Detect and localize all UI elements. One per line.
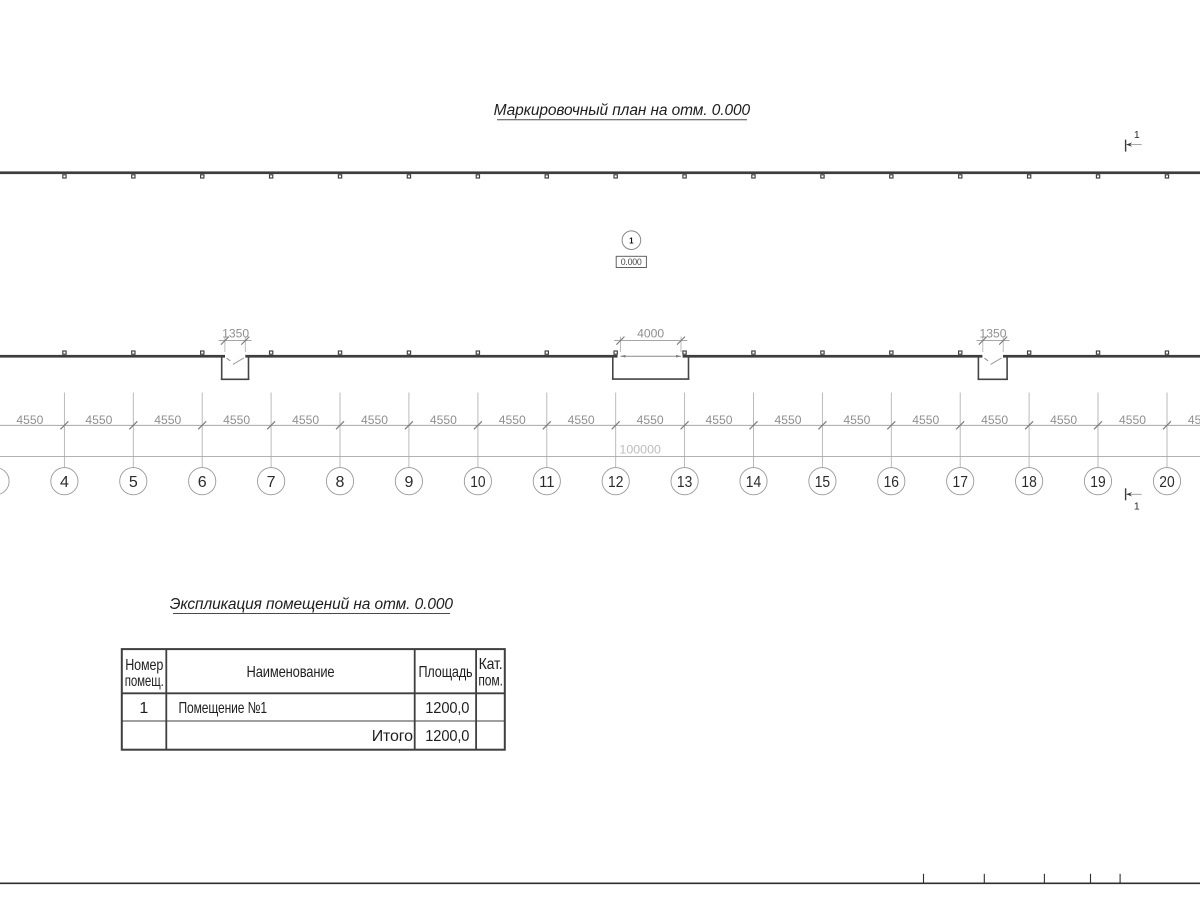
svg-text:4550: 4550 bbox=[775, 413, 802, 427]
svg-text:4550: 4550 bbox=[292, 413, 319, 427]
svg-text:4550: 4550 bbox=[430, 413, 457, 427]
svg-text:20: 20 bbox=[1159, 474, 1174, 491]
svg-text:1: 1 bbox=[139, 700, 148, 717]
svg-text:1: 1 bbox=[629, 236, 634, 245]
svg-text:Помещение №1: Помещение №1 bbox=[179, 700, 268, 717]
svg-text:Экспликация помещений на отм.: Экспликация помещений на отм. 0.000 bbox=[170, 596, 454, 613]
svg-text:4550: 4550 bbox=[85, 413, 112, 427]
svg-text:1350: 1350 bbox=[980, 326, 1007, 340]
svg-text:12: 12 bbox=[608, 474, 623, 491]
svg-text:4550: 4550 bbox=[1119, 413, 1146, 427]
svg-text:4: 4 bbox=[60, 474, 69, 491]
svg-text:Кат.: Кат. bbox=[479, 656, 503, 673]
svg-text:Маркировочный план на отм. 0.0: Маркировочный план на отм. 0.000 bbox=[494, 102, 751, 119]
svg-text:8: 8 bbox=[336, 474, 345, 491]
svg-text:1200,0: 1200,0 bbox=[425, 700, 469, 717]
svg-text:17: 17 bbox=[953, 474, 968, 491]
svg-text:4550: 4550 bbox=[568, 413, 595, 427]
svg-text:пом.: пом. bbox=[478, 673, 503, 690]
svg-text:15: 15 bbox=[815, 474, 830, 491]
svg-text:19: 19 bbox=[1090, 474, 1105, 491]
svg-text:4550: 4550 bbox=[981, 413, 1008, 427]
svg-text:0.000: 0.000 bbox=[621, 257, 642, 267]
svg-text:помещ.: помещ. bbox=[125, 673, 164, 690]
svg-text:4550: 4550 bbox=[912, 413, 939, 427]
svg-text:14: 14 bbox=[746, 474, 761, 491]
svg-text:7: 7 bbox=[267, 474, 276, 491]
svg-text:Итого: Итого bbox=[372, 728, 413, 745]
svg-text:1: 1 bbox=[1134, 129, 1140, 141]
svg-text:100000: 100000 bbox=[619, 442, 661, 456]
svg-text:4550: 4550 bbox=[1188, 413, 1200, 427]
svg-text:1: 1 bbox=[1134, 501, 1140, 513]
svg-text:5: 5 bbox=[129, 474, 138, 491]
svg-text:11: 11 bbox=[539, 474, 554, 491]
svg-text:1200,0: 1200,0 bbox=[425, 728, 469, 745]
svg-text:4550: 4550 bbox=[16, 413, 43, 427]
svg-text:4550: 4550 bbox=[1050, 413, 1077, 427]
svg-text:4550: 4550 bbox=[637, 413, 664, 427]
svg-text:9: 9 bbox=[404, 474, 413, 491]
svg-text:6: 6 bbox=[198, 474, 207, 491]
svg-text:4550: 4550 bbox=[843, 413, 870, 427]
svg-text:Площадь: Площадь bbox=[419, 664, 473, 681]
svg-text:4550: 4550 bbox=[361, 413, 388, 427]
svg-text:13: 13 bbox=[677, 474, 692, 491]
svg-text:4550: 4550 bbox=[706, 413, 733, 427]
svg-text:4000: 4000 bbox=[637, 326, 664, 340]
svg-text:4550: 4550 bbox=[499, 413, 526, 427]
svg-text:18: 18 bbox=[1021, 474, 1036, 491]
svg-text:4550: 4550 bbox=[154, 413, 181, 427]
svg-text:4550: 4550 bbox=[223, 413, 250, 427]
svg-text:16: 16 bbox=[884, 474, 899, 491]
svg-text:Наименование: Наименование bbox=[247, 664, 335, 681]
svg-text:10: 10 bbox=[470, 474, 485, 491]
svg-text:1350: 1350 bbox=[222, 326, 249, 340]
svg-text:Номер: Номер bbox=[125, 657, 163, 674]
